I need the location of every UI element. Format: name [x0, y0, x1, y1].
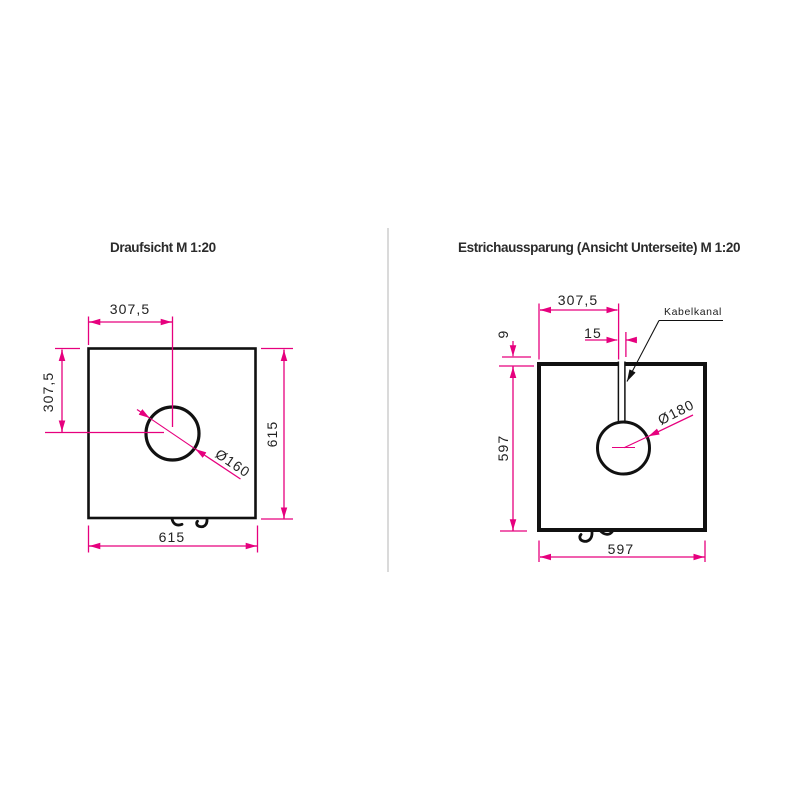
right-channel-width-label: 15	[584, 325, 602, 341]
left-bottom-width-label: 615	[159, 529, 186, 545]
right-view-title: Estrichaussparung (Ansicht Unterseite) M…	[458, 240, 740, 255]
right-hook-details	[580, 531, 612, 542]
left-hook-details	[172, 519, 207, 527]
technical-drawing-page: Draufsicht M 1:20 Estrichaussparung (Ans…	[0, 0, 800, 800]
right-bottom-width-label: 597	[608, 541, 635, 557]
right-dim-edge-offset	[499, 341, 534, 366]
cable-channel-label: Kabelkanal	[664, 306, 722, 318]
left-view-linework	[45, 317, 293, 553]
right-left-height-label: 597	[495, 435, 511, 462]
left-left-height-label: 307,5	[40, 372, 56, 413]
left-view-title: Draufsicht M 1:20	[110, 240, 216, 255]
cable-channel-lines	[618, 362, 625, 424]
left-top-width-label: 307,5	[110, 301, 151, 317]
right-edge-offset-label: 9	[495, 330, 511, 339]
left-dim-left-height	[45, 349, 164, 433]
left-right-height-label: 615	[264, 421, 280, 448]
left-dim-hole-diameter	[137, 410, 241, 480]
right-top-width-label: 307,5	[558, 292, 599, 308]
right-dim-top-width	[539, 304, 619, 360]
cable-channel-leader	[627, 321, 723, 382]
right-view-linework	[499, 304, 723, 563]
